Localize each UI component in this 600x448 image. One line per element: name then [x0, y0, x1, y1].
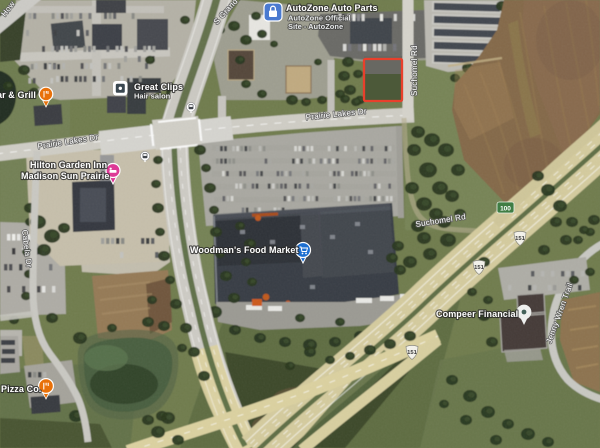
svg-text:Great Clips: Great Clips [134, 82, 183, 92]
svg-text:100: 100 [500, 206, 511, 213]
svg-text:Suchomel Rd: Suchomel Rd [410, 45, 419, 96]
svg-text:Woodman's Food Market: Woodman's Food Market [190, 245, 299, 255]
svg-text:Site - AutoZone: Site - AutoZone [288, 22, 343, 31]
svg-text:151: 151 [407, 350, 417, 356]
svg-text:Madison Sun Prairie: Madison Sun Prairie [21, 171, 109, 181]
svg-text:AutoZone Auto Parts: AutoZone Auto Parts [286, 3, 378, 13]
svg-text:Hair salon: Hair salon [134, 92, 171, 101]
svg-text:Hilton Garden Inn: Hilton Garden Inn [30, 160, 107, 170]
svg-text:ar & Grill: ar & Grill [0, 90, 36, 100]
svg-text:Pizza Co.: Pizza Co. [1, 384, 41, 394]
svg-text:Compeer Financial: Compeer Financial [436, 309, 518, 319]
svg-text:151: 151 [515, 236, 525, 242]
svg-text:151: 151 [474, 265, 484, 271]
